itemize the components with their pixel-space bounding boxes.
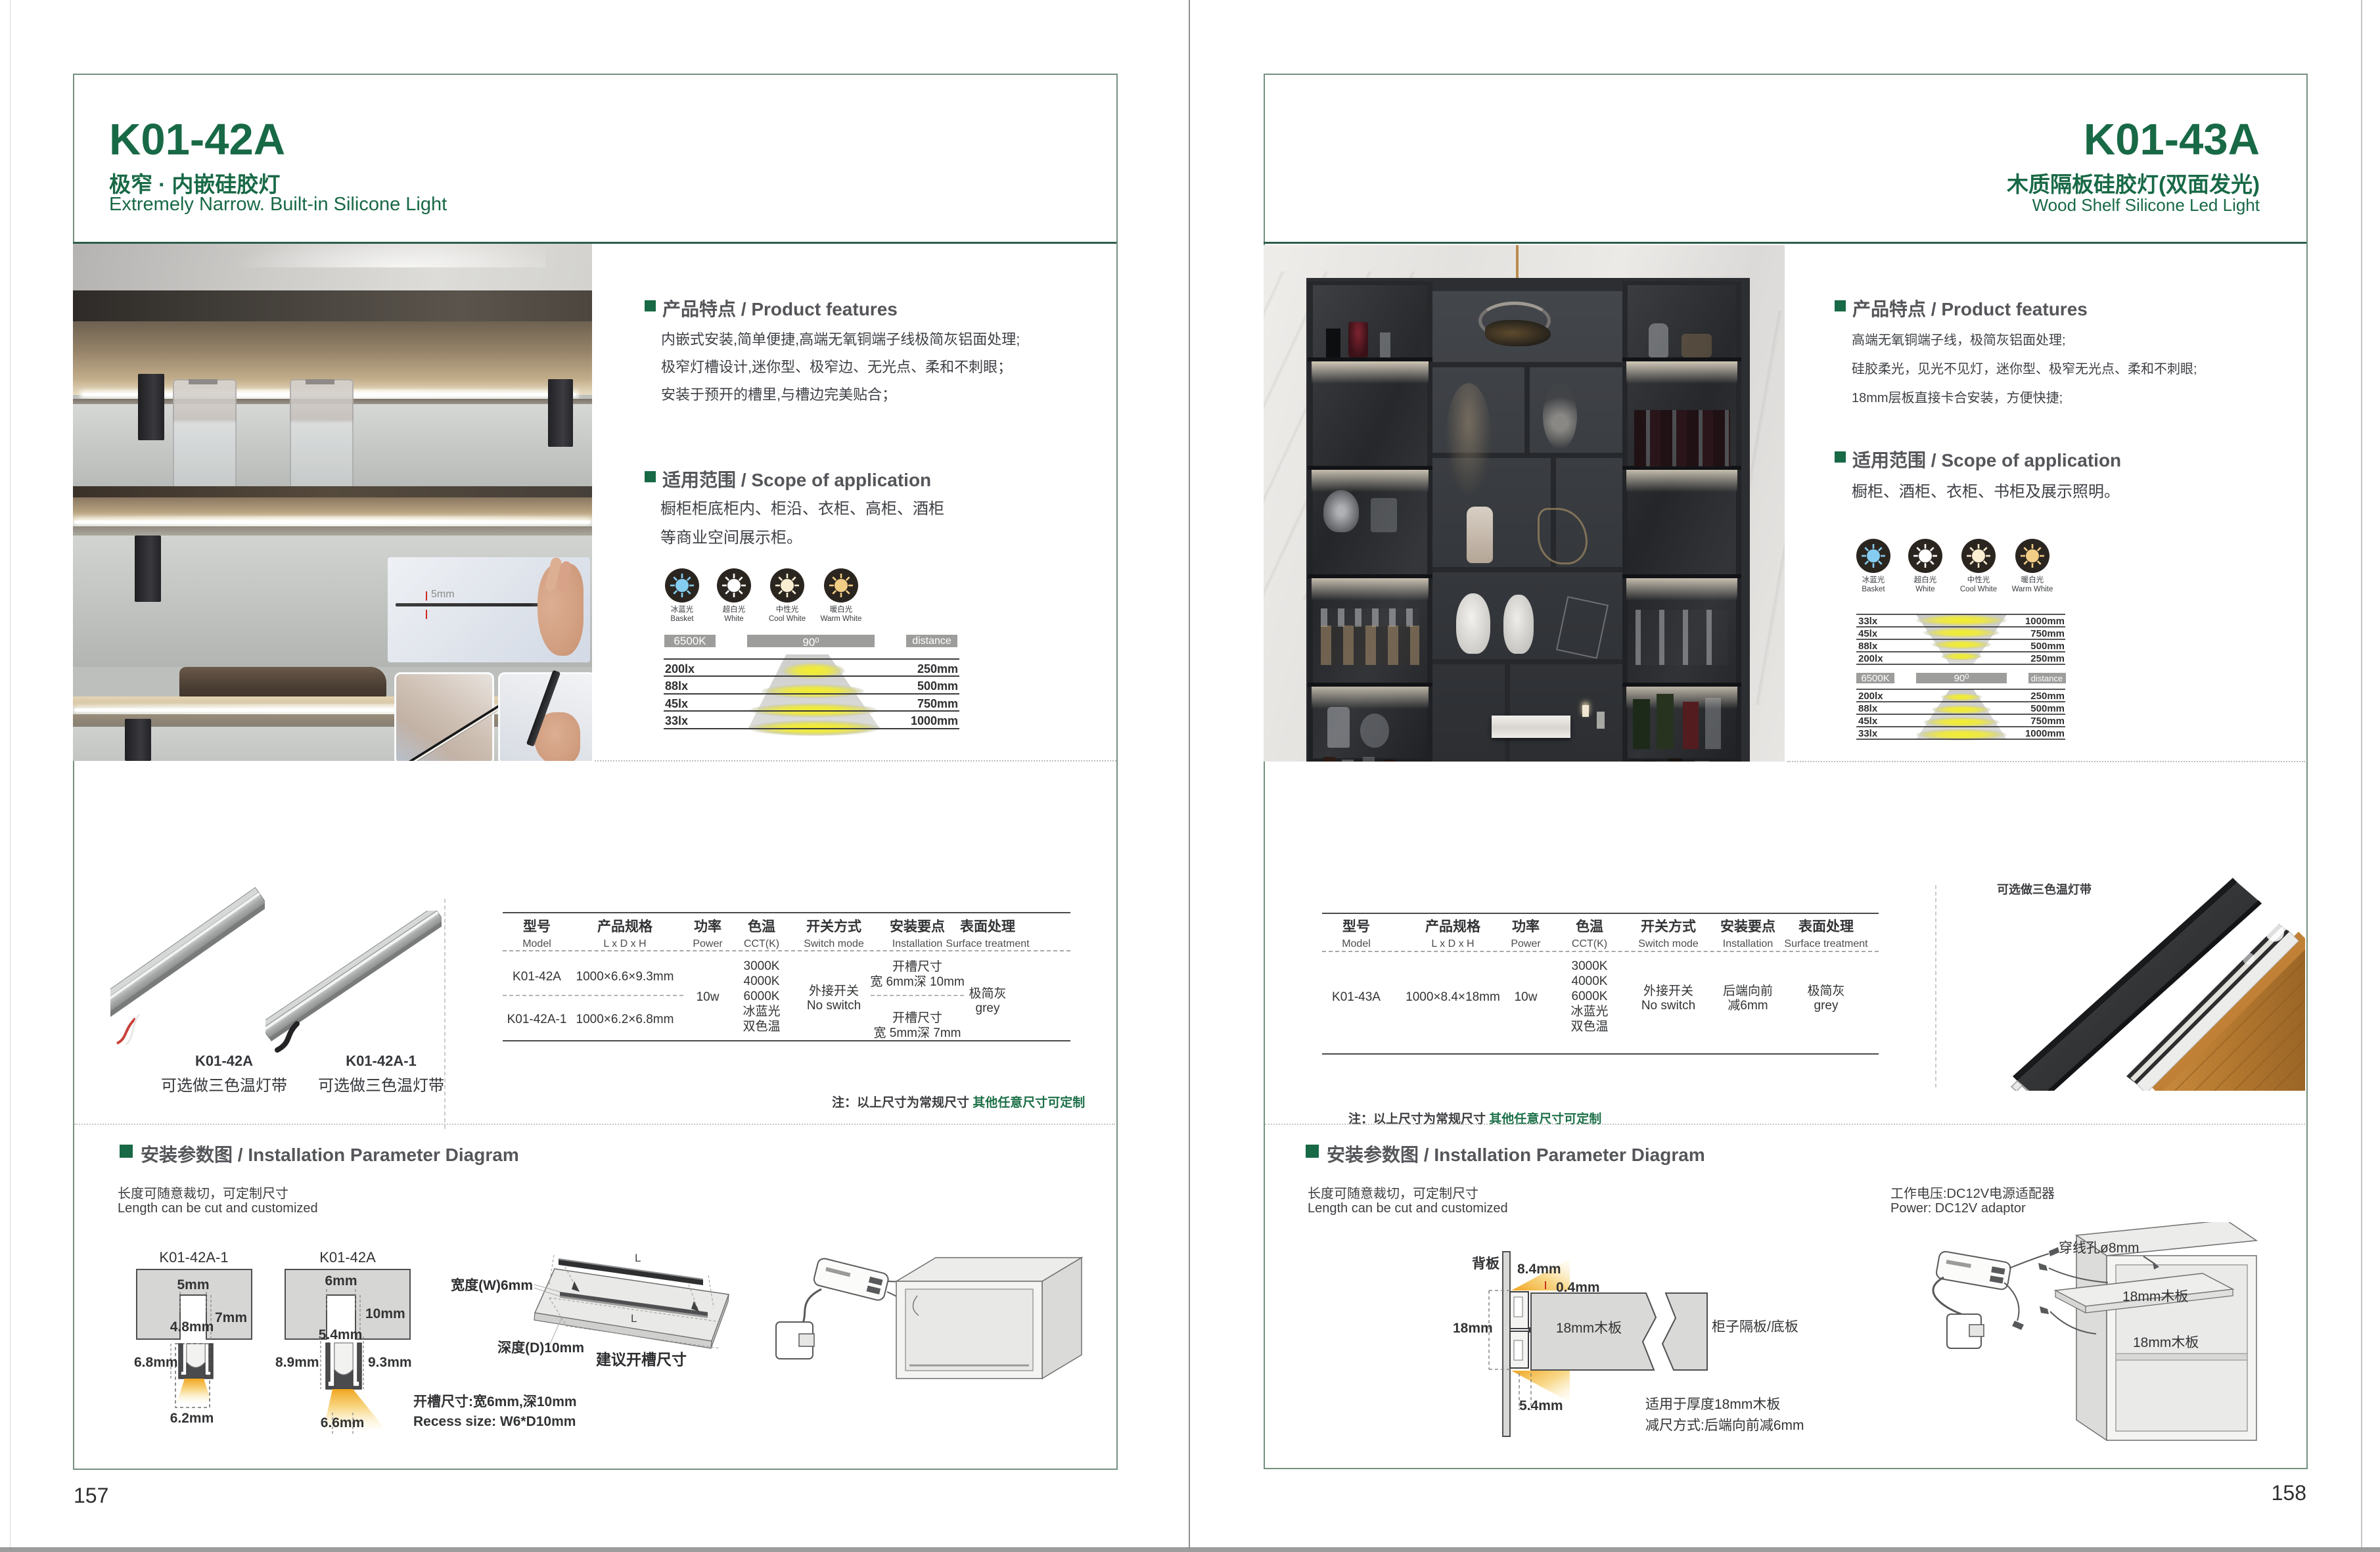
svg-text:33lx: 33lx: [1858, 728, 1878, 739]
svg-text:45lx: 45lx: [1858, 716, 1878, 727]
svg-text:8.4mm: 8.4mm: [1517, 1262, 1561, 1277]
svg-text:减尺方式:后端向前减6mm: 减尺方式:后端向前减6mm: [1645, 1418, 1804, 1433]
svg-text:33lx: 33lx: [1858, 616, 1878, 627]
svg-text:背板: 背板: [1472, 1256, 1500, 1271]
svg-text:18mm木板: 18mm木板: [2122, 1289, 2188, 1304]
svg-text:5.4mm: 5.4mm: [319, 1327, 363, 1342]
svg-text:5.4mm: 5.4mm: [1519, 1398, 1563, 1413]
svg-text:穿线孔ø8mm: 穿线孔ø8mm: [2059, 1241, 2140, 1256]
svg-text:Recess size: W6*D10mm: Recess size: W6*D10mm: [413, 1414, 576, 1429]
svg-text:开槽尺寸:宽6mm,深10mm: 开槽尺寸:宽6mm,深10mm: [413, 1394, 577, 1409]
svg-text:5mm: 5mm: [177, 1277, 209, 1292]
svg-text:18mm木板: 18mm木板: [2133, 1335, 2199, 1350]
svg-text:6mm: 6mm: [325, 1273, 357, 1289]
svg-text:250mm: 250mm: [917, 662, 958, 675]
svg-text:18mm木板: 18mm木板: [1556, 1321, 1622, 1336]
svg-text:18mm: 18mm: [1453, 1321, 1493, 1336]
svg-text:250mm: 250mm: [2030, 653, 2065, 664]
svg-text:6.6mm: 6.6mm: [321, 1415, 365, 1430]
svg-text:200lx: 200lx: [665, 662, 695, 675]
svg-text:6.2mm: 6.2mm: [170, 1411, 214, 1426]
svg-text:1000mm: 1000mm: [2025, 616, 2065, 627]
svg-text:4.8mm: 4.8mm: [170, 1319, 214, 1335]
svg-text:L: L: [631, 1312, 637, 1325]
svg-text:500mm: 500mm: [2030, 641, 2065, 652]
svg-text:0.4mm: 0.4mm: [1556, 1280, 1600, 1295]
svg-text:10mm: 10mm: [365, 1306, 405, 1321]
svg-text:45lx: 45lx: [1858, 628, 1878, 639]
svg-text:8.9mm: 8.9mm: [275, 1355, 319, 1370]
svg-text:K01-42A: K01-42A: [319, 1249, 376, 1266]
svg-text:L: L: [635, 1252, 641, 1264]
svg-text:1000mm: 1000mm: [911, 714, 958, 727]
svg-text:9.3mm: 9.3mm: [368, 1355, 412, 1370]
svg-text:6500K: 6500K: [1861, 673, 1889, 684]
svg-text:88lx: 88lx: [1858, 703, 1878, 714]
svg-text:6.8mm: 6.8mm: [134, 1355, 178, 1370]
svg-text:K01-42A-1: K01-42A-1: [159, 1249, 228, 1266]
svg-text:建议开槽尺寸: 建议开槽尺寸: [596, 1351, 687, 1368]
svg-text:distance: distance: [2031, 673, 2063, 683]
svg-text:1000mm: 1000mm: [2025, 728, 2065, 739]
svg-text:7mm: 7mm: [215, 1310, 247, 1325]
svg-text:250mm: 250mm: [2030, 691, 2065, 702]
svg-text:200lx: 200lx: [1858, 653, 1883, 664]
svg-text:500mm: 500mm: [2030, 703, 2065, 714]
svg-text:宽度(W)6mm: 宽度(W)6mm: [451, 1277, 533, 1293]
svg-text:33lx: 33lx: [665, 714, 688, 727]
svg-text:45lx: 45lx: [665, 697, 688, 710]
svg-text:88lx: 88lx: [1858, 641, 1878, 652]
svg-text:深度(D)10mm: 深度(D)10mm: [497, 1340, 584, 1356]
svg-text:200lx: 200lx: [1858, 691, 1883, 702]
svg-text:适用于厚度18mm木板: 适用于厚度18mm木板: [1645, 1397, 1780, 1412]
svg-text:柜子隔板/底板: 柜子隔板/底板: [1712, 1319, 1798, 1335]
svg-text:750mm: 750mm: [917, 697, 958, 710]
svg-text:750mm: 750mm: [2030, 716, 2065, 727]
svg-text:750mm: 750mm: [2030, 628, 2065, 639]
svg-text:88lx: 88lx: [665, 679, 688, 693]
svg-text:500mm: 500mm: [917, 679, 958, 693]
